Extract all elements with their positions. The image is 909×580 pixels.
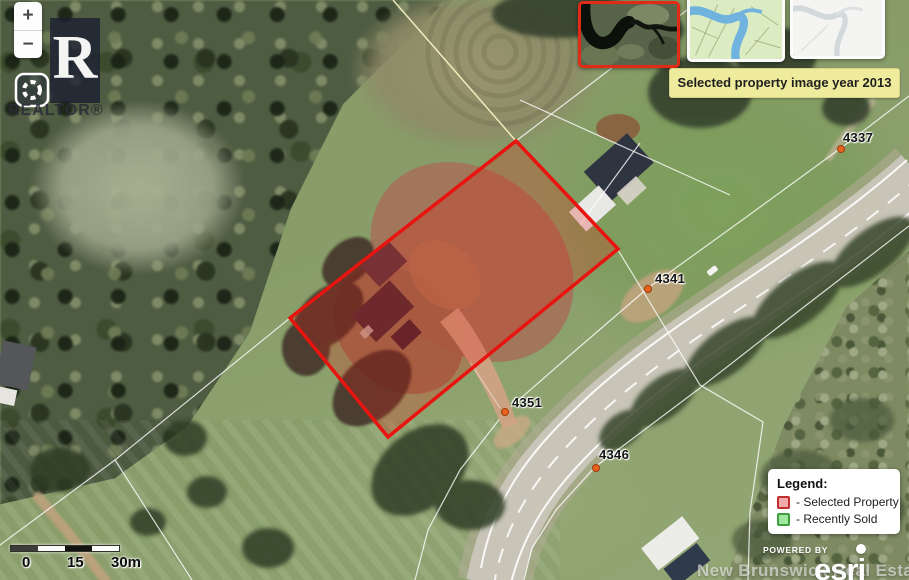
- scale-label-15: 15: [67, 554, 84, 571]
- legend-title: Legend:: [777, 476, 891, 491]
- scale-bar-segments: [10, 545, 120, 552]
- legend-panel: Legend: - Selected Property - Recently S…: [768, 469, 900, 534]
- zoom-in-button[interactable]: +: [14, 2, 42, 30]
- zoom-out-button[interactable]: −: [14, 30, 42, 59]
- selected-property-swatch: [777, 496, 790, 509]
- parcel-label: 4341: [655, 271, 685, 286]
- legend-item-selected-property: - Selected Property: [777, 495, 891, 509]
- imagery-year-tooltip: Selected property image year 2013: [669, 68, 900, 98]
- parcel-label: 4337: [843, 130, 873, 145]
- car-on-road: [706, 265, 718, 277]
- recently-sold-swatch: [777, 513, 790, 526]
- parcel-dot[interactable]: [592, 464, 600, 472]
- parcel-label: 4346: [599, 447, 629, 462]
- zoom-control[interactable]: + −: [14, 2, 42, 58]
- parcel-dot[interactable]: [837, 145, 845, 153]
- scale-label-0: 0: [22, 554, 30, 571]
- thumbnail-light-basemap[interactable]: [790, 0, 885, 59]
- parcel-dot[interactable]: [644, 285, 652, 293]
- thumbnail-aerial-2013-selected[interactable]: [578, 1, 680, 68]
- house-west-edge: [0, 340, 37, 408]
- property-map-viewer[interactable]: 4337 4341 4351 4346 + − R REALTOR®: [0, 0, 909, 580]
- parcel-label: 4351: [512, 395, 542, 410]
- scale-bar: 0 15 30m: [10, 543, 160, 577]
- scale-label-30m: 30m: [111, 554, 141, 571]
- thumbnail-topographic-map[interactable]: [687, 0, 785, 62]
- realtor-r-block: R: [50, 18, 100, 103]
- realtor-wordmark: REALTOR®: [8, 102, 118, 120]
- board-watermark: New Brunswick Real Estate Board: [697, 561, 909, 580]
- parcel-dot[interactable]: [501, 408, 509, 416]
- legend-item-recently-sold: - Recently Sold: [777, 512, 891, 526]
- esri-logo: esri: [814, 552, 865, 580]
